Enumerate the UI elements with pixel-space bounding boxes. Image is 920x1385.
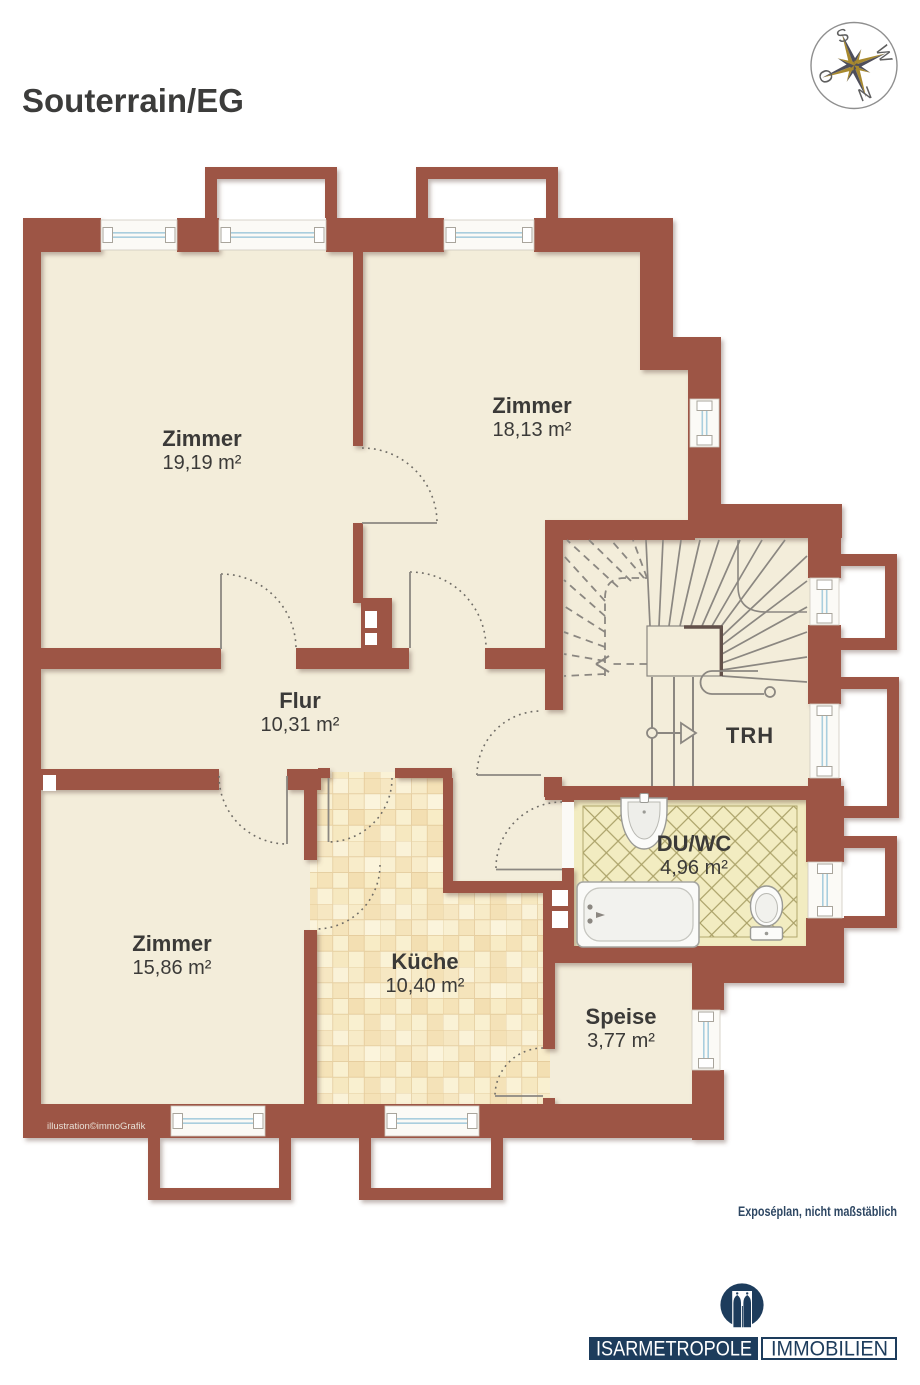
- svg-text:19,19 m²: 19,19 m²: [163, 452, 242, 474]
- svg-text:IMMOBILIEN: IMMOBILIEN: [771, 1338, 888, 1361]
- svg-text:10,40 m²: 10,40 m²: [386, 975, 465, 997]
- svg-text:TRH: TRH: [726, 723, 774, 748]
- svg-text:Zimmer: Zimmer: [132, 931, 212, 956]
- svg-text:18,13 m²: 18,13 m²: [493, 419, 572, 441]
- svg-text:Küche: Küche: [391, 949, 458, 974]
- svg-text:Exposéplan, nicht maßstäblich: Exposéplan, nicht maßstäblich: [738, 1204, 897, 1219]
- svg-text:Flur: Flur: [279, 688, 321, 713]
- svg-text:10,31 m²: 10,31 m²: [261, 714, 340, 736]
- svg-text:4,96 m²: 4,96 m²: [660, 857, 728, 879]
- svg-text:DU/WC: DU/WC: [657, 831, 732, 856]
- svg-text:illustration©immoGrafik: illustration©immoGrafik: [47, 1121, 146, 1132]
- svg-text:Zimmer: Zimmer: [162, 426, 242, 451]
- svg-text:Zimmer: Zimmer: [492, 393, 572, 418]
- svg-text:15,86 m²: 15,86 m²: [133, 957, 212, 979]
- svg-text:3,77 m²: 3,77 m²: [587, 1030, 655, 1052]
- svg-text:Souterrain/EG: Souterrain/EG: [22, 82, 244, 119]
- svg-text:Speise: Speise: [586, 1004, 657, 1029]
- svg-text:ISARMETROPOLE: ISARMETROPOLE: [596, 1338, 752, 1361]
